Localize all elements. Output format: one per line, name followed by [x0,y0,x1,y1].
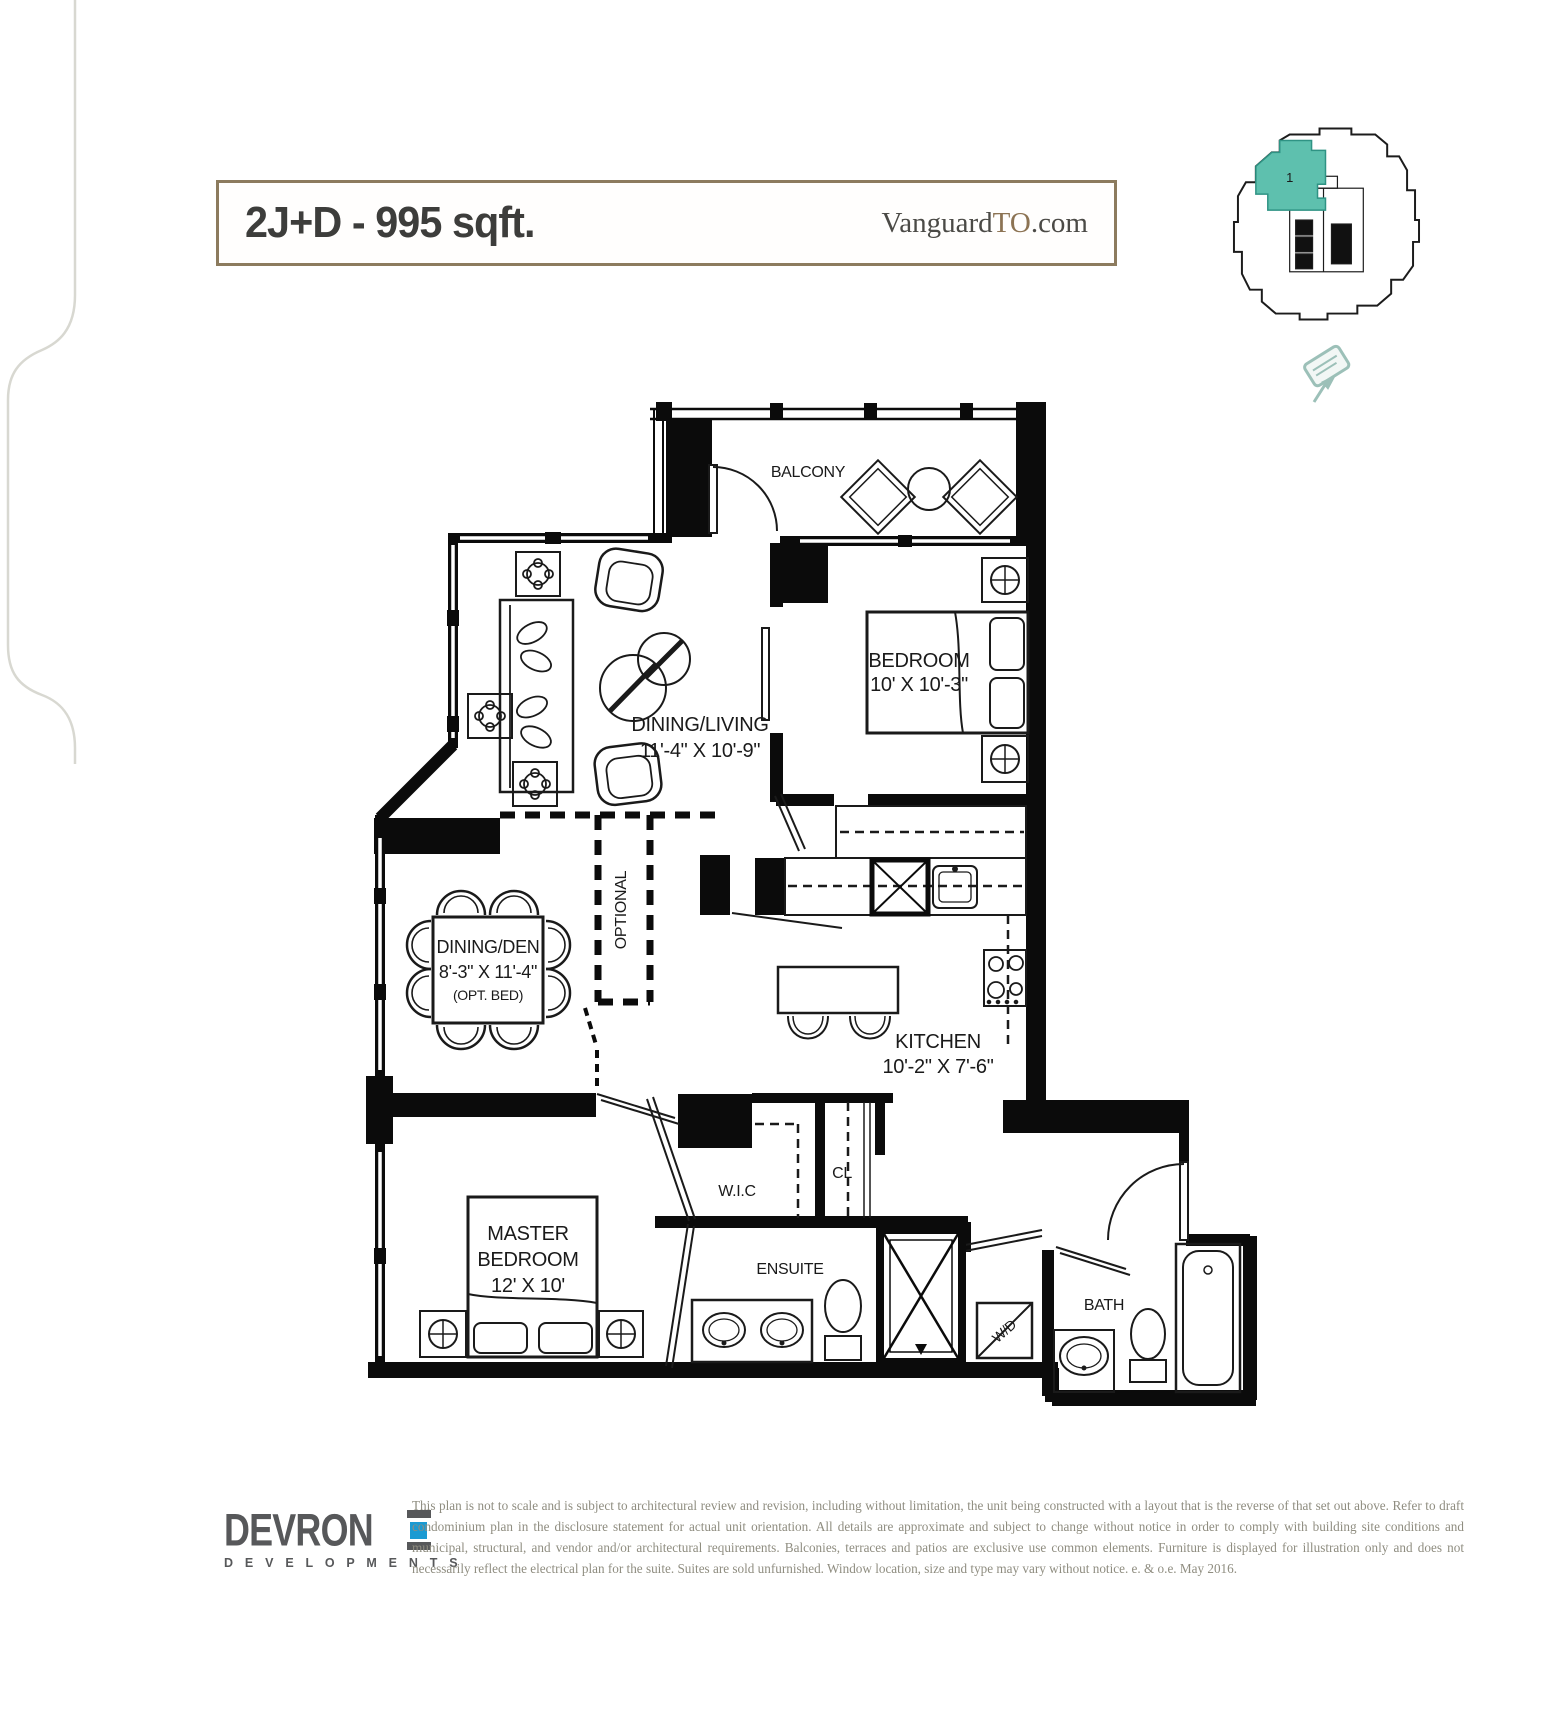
sofa [500,600,573,792]
devron-logo: DEVRON D E V E L O P M E N T S [224,1510,374,1570]
shower [880,1230,962,1362]
keyplan-unit-number: 1 [1286,170,1293,185]
title-box: 2J+D - 995 sqft. VanguardTO.com [216,180,1117,266]
floor-plan: BALCONY DINING/LIVING 11'-4" X 10'-9" BE… [330,358,1280,1443]
page-title: 2J+D - 995 sqft. [245,198,535,248]
bath-sink [1054,1330,1114,1392]
bedroom-bed [867,612,1028,733]
website-accent: TO [993,207,1031,239]
ensuite-vanity [692,1300,812,1362]
balcony-furniture [841,460,1017,534]
disclaimer-text: This plan is not to scale and is subject… [412,1496,1464,1579]
dining-den-dims: 8'-3" X 11'-4" [439,962,537,982]
bath-toilet [1130,1309,1166,1382]
website-link[interactable]: VanguardTO.com [882,207,1088,240]
coffee-tables [600,633,690,721]
cl-label: CL [832,1165,852,1182]
website-prefix: Vanguard [882,207,993,239]
dining-living-dims: 11'-4" X 10'-9" [640,740,761,762]
ensuite-toilet [825,1280,861,1360]
north-arrow-icon [1296,334,1366,408]
optional-label: OPTIONAL [613,870,630,949]
dining-den-label: DINING/DEN [436,937,539,957]
dining-living-label: DINING/LIVING [631,714,768,736]
website-suffix: .com [1031,207,1088,239]
devron-logo-text: DEVRON [224,1510,373,1549]
ceiling-light-icon [468,552,560,806]
master-bedroom-label-1: MASTER [487,1223,569,1245]
bath-label: BATH [1084,1297,1124,1314]
devron-logo-subtext: D E V E L O P M E N T S [224,1556,374,1570]
kitchen-dims: 10'-2" X 7'-6" [882,1056,993,1078]
keyplan-outline [1234,129,1419,320]
floorplan-page: { "header": { "title": "2J+D - 995 sqft.… [0,0,1556,1724]
dining-den-note: (OPT. BED) [453,987,523,1003]
bathtub [1176,1244,1240,1392]
armchairs [593,546,665,807]
balcony-label: BALCONY [771,464,846,481]
kitchen-label: KITCHEN [895,1031,981,1053]
building-keyplan: 1 [1228,124,1422,334]
ensuite-label: ENSUITE [756,1261,823,1278]
wic-label: W.I.C [718,1183,756,1200]
bedroom-dims: 10' X 10'-3" [870,674,968,696]
stove [984,950,1026,1006]
page-curl-decoration [0,0,120,1724]
master-bedroom-dims: 12' X 10' [491,1275,565,1297]
master-bedroom-label-2: BEDROOM [477,1249,578,1271]
kitchen-island [778,967,898,1039]
bedroom-label: BEDROOM [868,650,969,672]
